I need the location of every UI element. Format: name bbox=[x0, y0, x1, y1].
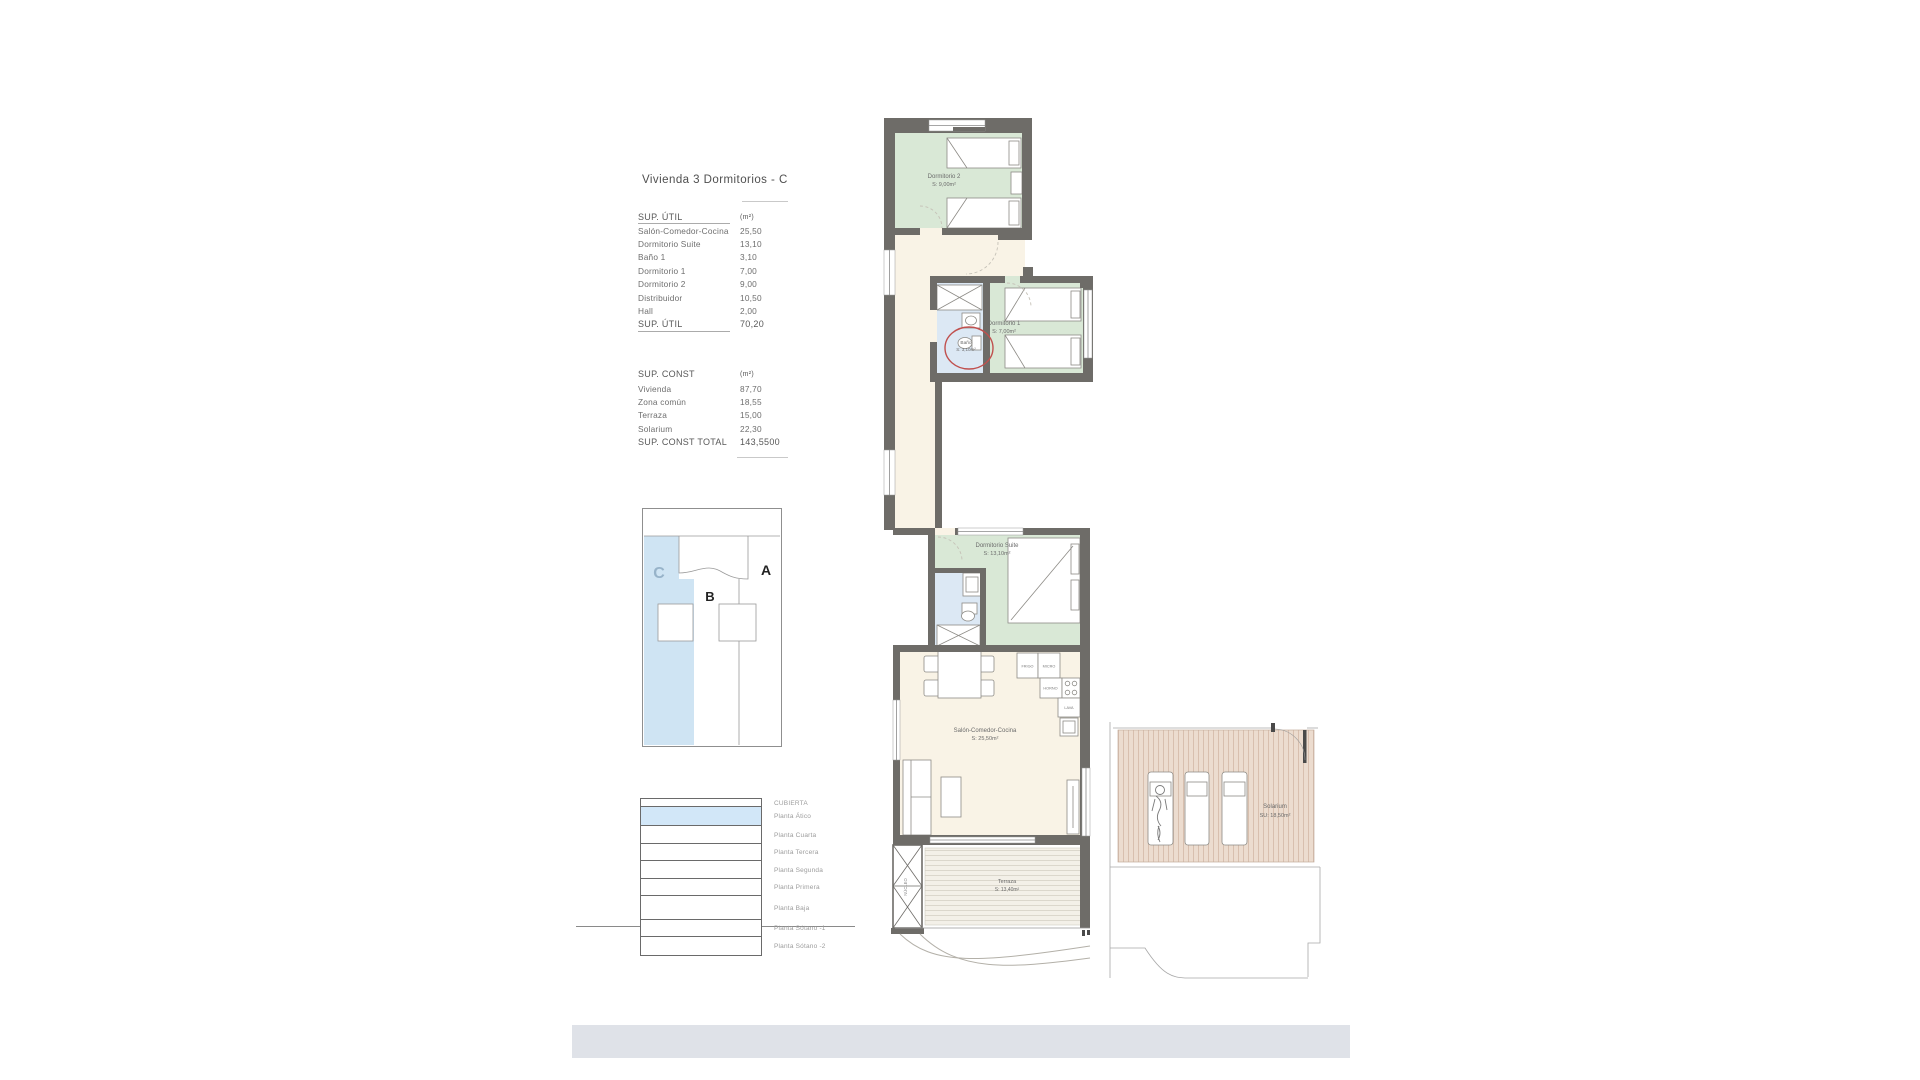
row-label: Dormitorio 1 bbox=[638, 266, 740, 276]
level-label: CUBIERTA bbox=[774, 800, 808, 807]
row-value: 15,00 bbox=[740, 410, 762, 420]
suite-label: Dormitorio Suite bbox=[975, 543, 1019, 549]
level-bar bbox=[640, 878, 762, 896]
row-value: 13,10 bbox=[740, 239, 762, 249]
salon-area: S: 25,50m² bbox=[972, 736, 999, 742]
sup-const-header: SUP. CONST (m²) bbox=[638, 368, 798, 380]
sup-util-header: SUP. ÚTIL (m²) bbox=[638, 211, 798, 223]
table-row: Solarium22,30 bbox=[638, 422, 798, 435]
row-value: 7,00 bbox=[740, 266, 757, 276]
unit-overline bbox=[742, 201, 788, 202]
key-plan-drawing: C B A bbox=[643, 509, 781, 746]
table-row: Dormitorio 29,00 bbox=[638, 278, 798, 291]
patio-left bbox=[658, 604, 693, 641]
bano-area: S: 3,10m² bbox=[956, 347, 976, 352]
level-label: Planta Segunda bbox=[774, 867, 823, 874]
row-value: 9,00 bbox=[740, 279, 757, 289]
divider bbox=[638, 331, 730, 332]
row-label: Zona común bbox=[638, 397, 740, 407]
sup-util-header-label: SUP. ÚTIL bbox=[638, 212, 740, 222]
level-label: Planta Baja bbox=[774, 905, 809, 912]
page-title: Vivienda 3 Dormitorios - C bbox=[642, 174, 788, 186]
level-bar-highlighted bbox=[640, 806, 762, 826]
solarium-label: Solarium bbox=[1263, 804, 1287, 810]
table-row: Salón-Comedor-Cocina25,50 bbox=[638, 224, 798, 237]
row-label: Distribuidor bbox=[638, 293, 740, 303]
unit-c-label: C bbox=[653, 565, 665, 582]
core-label: NÚCLEO bbox=[903, 878, 908, 896]
floor-plan-page: { "title": "Vivienda 3 Dormitorios - C",… bbox=[0, 0, 1920, 1080]
solarium-loungers bbox=[1148, 772, 1247, 845]
level-row: Planta Ático bbox=[640, 807, 826, 826]
row-label: Vivienda bbox=[638, 384, 740, 394]
level-label: Planta Sótano -1 bbox=[774, 925, 826, 932]
row-value: 22,30 bbox=[740, 424, 762, 434]
level-row: Planta Baja bbox=[640, 896, 826, 920]
level-bar bbox=[640, 895, 762, 920]
table-row: Dormitorio 17,00 bbox=[638, 264, 798, 277]
notch-outline bbox=[679, 536, 748, 579]
row-value: 18,55 bbox=[740, 397, 762, 407]
row-label: Dormitorio 2 bbox=[638, 279, 740, 289]
level-bar bbox=[640, 843, 762, 861]
suite-area: S: 13,10m² bbox=[984, 551, 1011, 557]
level-label: Planta Tercera bbox=[774, 849, 819, 856]
row-value: 2,00 bbox=[740, 306, 757, 316]
row-label: Terraza bbox=[638, 410, 740, 420]
level-bar bbox=[640, 936, 762, 956]
unit-a-label: A bbox=[761, 562, 771, 578]
row-value: 87,70 bbox=[740, 384, 762, 394]
table-row: Distribuidor10,50 bbox=[638, 291, 798, 304]
micro-label: MICRO bbox=[1043, 665, 1056, 669]
sup-const-header-label: SUP. CONST bbox=[638, 369, 740, 379]
terrace-lines bbox=[895, 928, 1090, 965]
row-label: Solarium bbox=[638, 424, 740, 434]
level-bar bbox=[640, 825, 762, 844]
frigo-label: FRIGO bbox=[1021, 665, 1033, 669]
solarium-deck bbox=[1118, 730, 1314, 862]
bano-label: Baño bbox=[960, 340, 972, 346]
table-row: Dormitorio Suite13,10 bbox=[638, 237, 798, 250]
total-label: SUP. ÚTIL bbox=[638, 319, 740, 329]
level-bar bbox=[640, 860, 762, 879]
sup-const-header-unit: (m²) bbox=[740, 371, 754, 378]
level-label: Planta Sótano -2 bbox=[774, 943, 826, 950]
total-value: 143,5500 bbox=[740, 437, 780, 447]
core-shaft: NÚCLEO bbox=[893, 845, 922, 928]
floor-plan-drawing: NÚCLEO Dormitorio 2 S: 9,00m² Dormitorio… bbox=[878, 100, 1338, 1000]
sup-util-table: SUP. ÚTIL (m²) Salón-Comedor-Cocina25,50… bbox=[638, 211, 798, 332]
level-row: Planta Sótano -1 bbox=[640, 920, 826, 937]
terraza-area: S: 13,40m² bbox=[995, 887, 1020, 893]
lava-label: LAVA bbox=[1064, 706, 1074, 710]
total-label: SUP. CONST TOTAL bbox=[638, 437, 740, 447]
window-panel bbox=[953, 127, 985, 131]
sup-util-header-unit: (m²) bbox=[740, 214, 754, 221]
row-label: Hall bbox=[638, 306, 740, 316]
table-row: Vivienda87,70 bbox=[638, 382, 798, 395]
row-label: Salón-Comedor-Cocina bbox=[638, 226, 740, 236]
horno-label: HORNO bbox=[1043, 687, 1057, 691]
level-row: Planta Sótano -2 bbox=[640, 937, 826, 956]
salon-label: Salón-Comedor-Cocina bbox=[954, 728, 1017, 734]
level-label: Planta Primera bbox=[774, 884, 820, 891]
row-value: 3,10 bbox=[740, 252, 757, 262]
level-row: Planta Primera bbox=[640, 879, 826, 896]
level-row: Planta Tercera bbox=[640, 844, 826, 861]
row-value: 10,50 bbox=[740, 293, 762, 303]
footer-bar bbox=[572, 1025, 1350, 1058]
key-plan: C B A bbox=[642, 508, 782, 747]
sup-const-table: SUP. CONST (m²) Vivienda87,70 Zona común… bbox=[638, 368, 798, 449]
sup-const-total-row: SUP. CONST TOTAL143,5500 bbox=[638, 436, 798, 449]
row-label: Baño 1 bbox=[638, 252, 740, 262]
dormitorio2-label: Dormitorio 2 bbox=[928, 174, 961, 180]
unit-b-label: B bbox=[705, 589, 714, 604]
dormitorio2-area: S: 9,00m² bbox=[932, 182, 956, 188]
dormitorio1-label: Dormitorio 1 bbox=[988, 321, 1021, 327]
table-row: Hall2,00 bbox=[638, 304, 798, 317]
terraza-label: Terraza bbox=[998, 879, 1017, 885]
level-bar bbox=[640, 919, 762, 937]
total-underline bbox=[737, 457, 788, 458]
row-value: 25,50 bbox=[740, 226, 762, 236]
row-label: Dormitorio Suite bbox=[638, 239, 740, 249]
level-row: Planta Cuarta bbox=[640, 826, 826, 844]
total-value: 70,20 bbox=[740, 319, 764, 329]
level-label: Planta Cuarta bbox=[774, 832, 816, 839]
table-row: Baño 13,10 bbox=[638, 251, 798, 264]
level-label: Planta Ático bbox=[774, 813, 811, 820]
sup-util-total-row: SUP. ÚTIL70,20 bbox=[638, 318, 798, 331]
level-row: Planta Segunda bbox=[640, 861, 826, 879]
table-row: Zona común18,55 bbox=[638, 395, 798, 408]
table-row: Terraza15,00 bbox=[638, 409, 798, 422]
dormitorio1-area: S: 7,00m² bbox=[992, 329, 1016, 335]
solarium-area: SU: 18,50m² bbox=[1260, 813, 1291, 819]
patio-right bbox=[719, 604, 756, 641]
levels-diagram: CUBIERTA Planta Ático Planta Cuarta Plan… bbox=[640, 799, 826, 956]
